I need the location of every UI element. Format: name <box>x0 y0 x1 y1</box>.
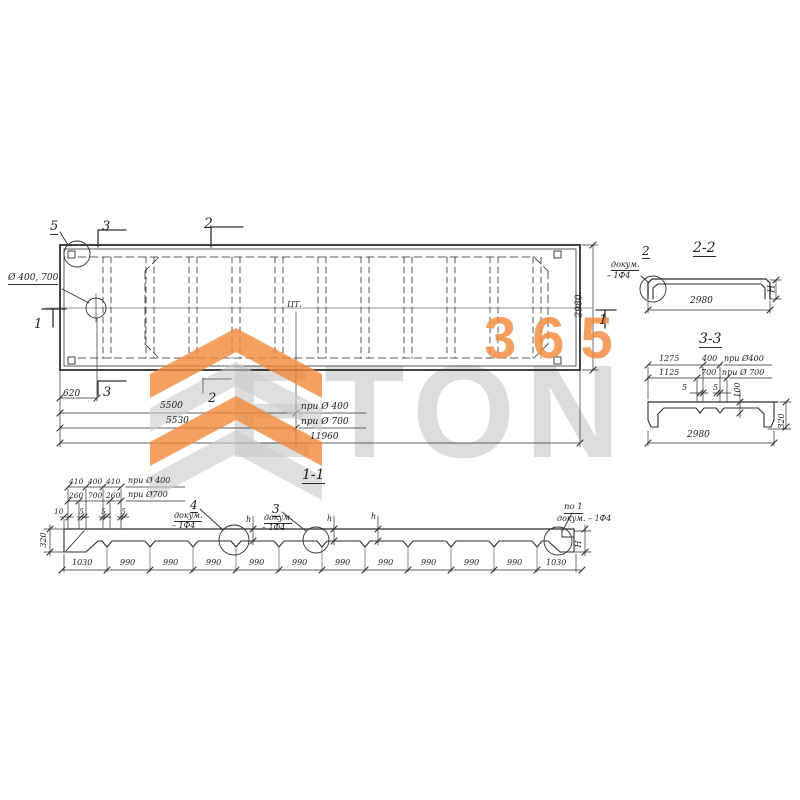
drawing-sheet: ETON 365 <box>0 0 800 800</box>
watermark-chevron-logo <box>0 0 800 800</box>
watermark-number: 365 <box>484 310 629 368</box>
